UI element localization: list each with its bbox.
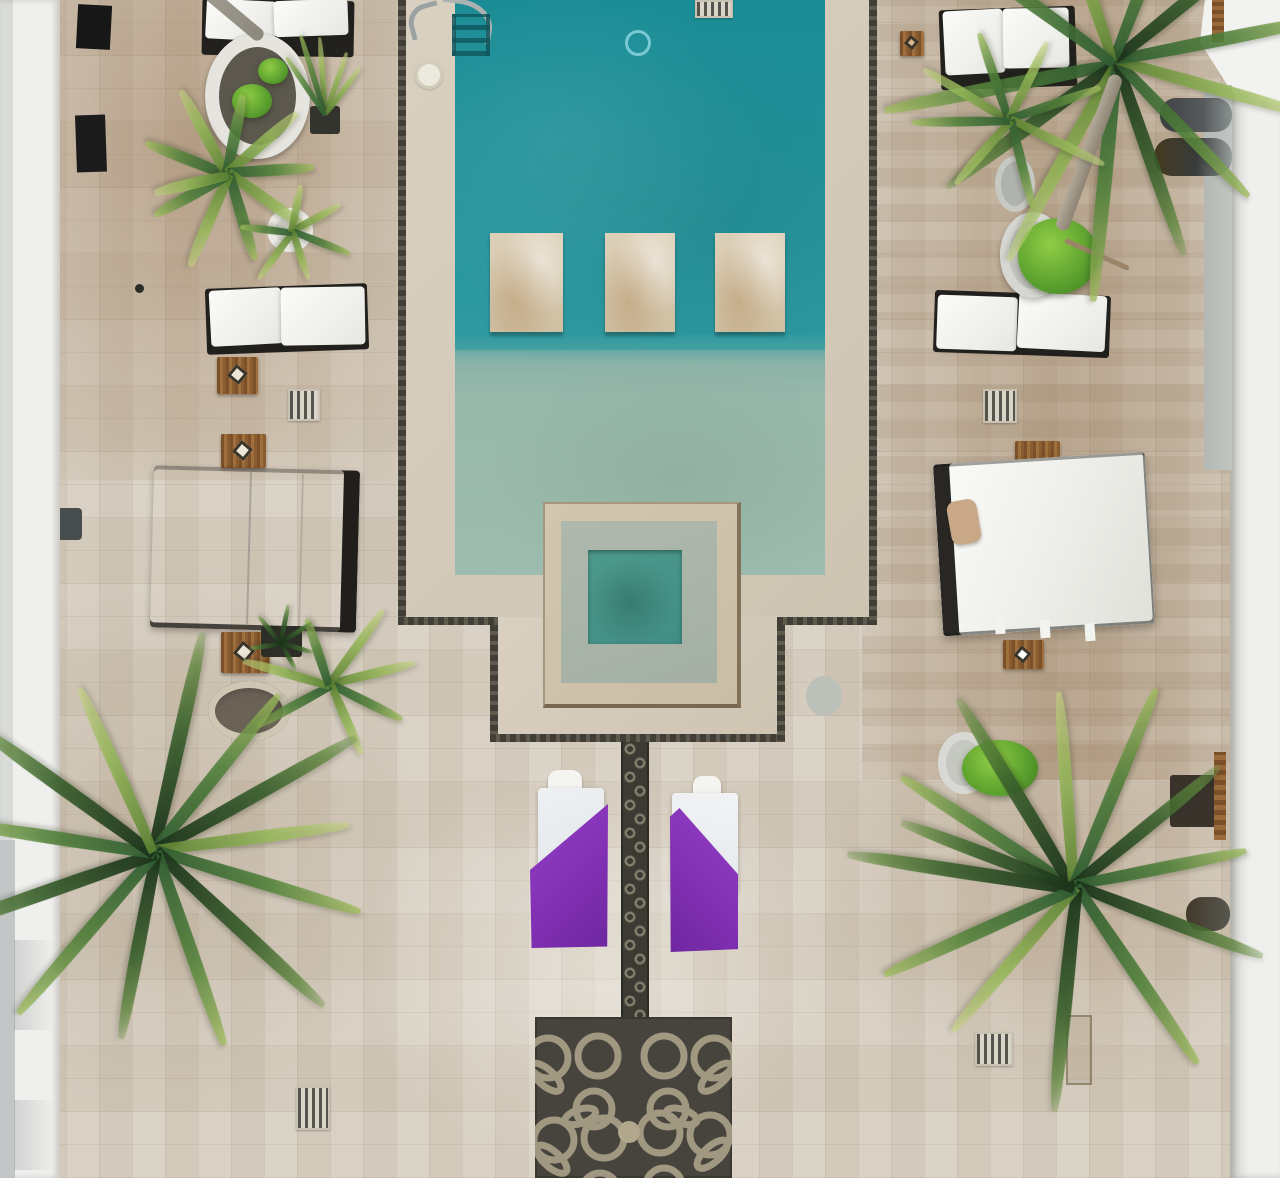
drain-grate	[695, 0, 733, 18]
pool-mosaic-border	[398, 617, 498, 625]
floor-mat	[75, 114, 107, 172]
wall-mark	[14, 1100, 54, 1170]
plant-pot	[806, 676, 842, 716]
right-wall	[1230, 0, 1280, 1178]
daybed-right	[933, 452, 1155, 637]
swim-up-slab	[490, 233, 563, 332]
courtyard-aerial-photo	[0, 0, 1280, 1178]
pool-mosaic-border	[869, 0, 877, 625]
pool-mosaic-border	[777, 625, 785, 742]
pool-mosaic-border	[490, 734, 785, 742]
expansion-joint	[1066, 1015, 1092, 1085]
table-ornament	[1013, 645, 1031, 663]
umbrella-pole-cap	[135, 284, 144, 293]
swim-up-slab	[605, 233, 675, 332]
floor-mat	[76, 4, 112, 50]
lounge-chair	[936, 295, 1018, 352]
lounge-chair	[273, 0, 348, 37]
daybed-strap	[1039, 620, 1050, 639]
pool-mosaic-border	[398, 0, 406, 625]
side-table	[1003, 640, 1044, 669]
drain-grate	[296, 1086, 330, 1130]
side-table	[900, 31, 924, 56]
table-ornament	[904, 35, 919, 50]
pot-foliage	[258, 58, 288, 84]
drain-grate	[975, 1032, 1013, 1066]
mosaic-walkway	[621, 742, 649, 1017]
drain-grate	[288, 389, 320, 421]
pool-mosaic-border	[777, 617, 877, 625]
daybed-strap	[994, 616, 1005, 635]
pool-mosaic-border	[490, 625, 498, 742]
pool-ladder-steps	[452, 14, 490, 56]
swim-up-slab	[715, 233, 785, 332]
daybed-left	[150, 465, 360, 632]
left-wall-lower-strip	[0, 840, 15, 1178]
lounge-chair	[281, 286, 366, 345]
mosaic-rug	[535, 1017, 732, 1178]
spa-water	[588, 550, 682, 644]
table-ornament	[232, 440, 253, 461]
daybed-strap	[1084, 623, 1095, 642]
pool-light	[625, 30, 651, 56]
side-table	[221, 434, 266, 468]
lounge-chair	[942, 8, 1005, 75]
drain-grate	[983, 389, 1017, 423]
deck-skimmer-lid	[415, 61, 443, 89]
